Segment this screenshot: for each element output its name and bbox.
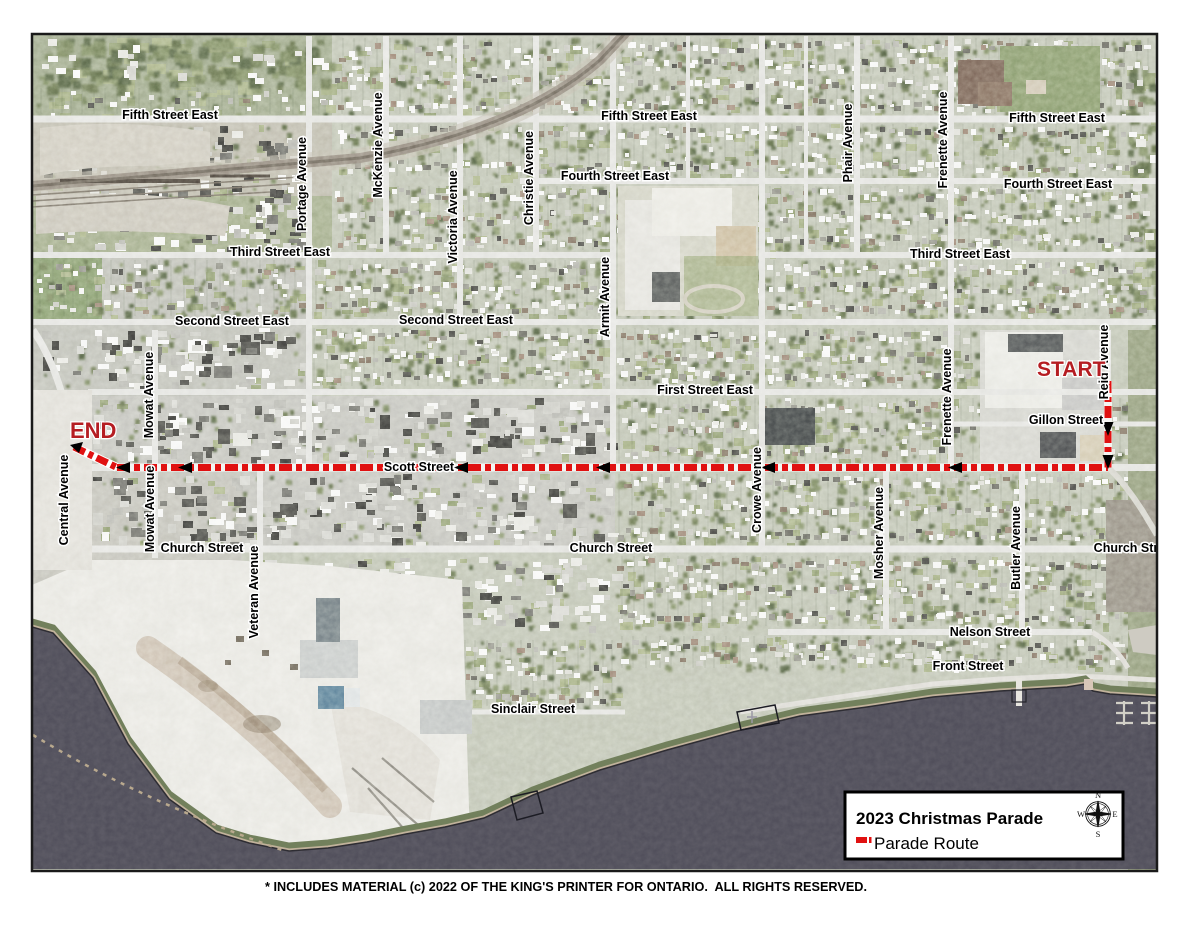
- svg-text:Church Street: Church Street: [161, 541, 244, 555]
- svg-text:Third Street East: Third Street East: [910, 247, 1011, 261]
- svg-text:Nelson Street: Nelson Street: [950, 625, 1031, 639]
- svg-text:Mowat Avenue: Mowat Avenue: [143, 466, 157, 553]
- svg-text:E: E: [1112, 809, 1117, 819]
- svg-text:Gillon Street: Gillon Street: [1029, 413, 1104, 427]
- svg-text:First Street East: First Street East: [657, 383, 754, 397]
- svg-text:Fourth Street East: Fourth Street East: [561, 169, 670, 183]
- svg-text:Fourth Street East: Fourth Street East: [1004, 177, 1113, 191]
- svg-text:Frenette Avenue: Frenette Avenue: [936, 91, 950, 188]
- svg-text:* INCLUDES MATERIAL (c) 2022 O: * INCLUDES MATERIAL (c) 2022 OF THE KING…: [265, 880, 867, 894]
- svg-text:END: END: [70, 418, 116, 443]
- svg-text:N: N: [1095, 790, 1101, 800]
- svg-text:Parade Route: Parade Route: [874, 834, 979, 853]
- svg-text:Veteran Avenue: Veteran Avenue: [247, 546, 261, 639]
- svg-text:Armit Avenue: Armit Avenue: [598, 257, 612, 337]
- svg-text:Victoria Avenue: Victoria Avenue: [446, 170, 460, 263]
- svg-text:2023 Christmas Parade: 2023 Christmas Parade: [856, 809, 1043, 828]
- svg-text:Christie Avenue: Christie Avenue: [522, 131, 536, 225]
- svg-text:Fifth Street East: Fifth Street East: [122, 108, 219, 122]
- svg-text:Fifth Street East: Fifth Street East: [1009, 111, 1106, 125]
- svg-text:Frenette Avenue: Frenette Avenue: [940, 348, 954, 445]
- svg-text:Front Street: Front Street: [933, 659, 1005, 673]
- svg-text:Church Street: Church Street: [570, 541, 653, 555]
- svg-text:Third Street East: Third Street East: [230, 245, 331, 259]
- svg-text:McKenzie Avenue: McKenzie Avenue: [371, 92, 385, 197]
- svg-text:Central Avenue: Central Avenue: [57, 455, 71, 546]
- svg-text:Second Street East: Second Street East: [399, 313, 514, 327]
- svg-text:START: START: [1037, 358, 1106, 381]
- svg-text:Second Street East: Second Street East: [175, 314, 290, 328]
- svg-text:W: W: [1077, 809, 1085, 819]
- svg-text:Mosher Avenue: Mosher Avenue: [872, 487, 886, 579]
- svg-text:Sinclair Street: Sinclair Street: [491, 702, 576, 716]
- svg-text:Portage Avenue: Portage Avenue: [295, 137, 309, 231]
- svg-text:Scott Street: Scott Street: [384, 460, 455, 474]
- svg-text:Crowe Avenue: Crowe Avenue: [750, 447, 764, 533]
- svg-text:Mowat Avenue: Mowat Avenue: [142, 352, 156, 439]
- svg-text:Fifth Street East: Fifth Street East: [601, 109, 698, 123]
- svg-text:Phair Avenue: Phair Avenue: [841, 103, 855, 182]
- svg-text:Butler Avenue: Butler Avenue: [1009, 506, 1023, 590]
- svg-text:S: S: [1096, 829, 1101, 839]
